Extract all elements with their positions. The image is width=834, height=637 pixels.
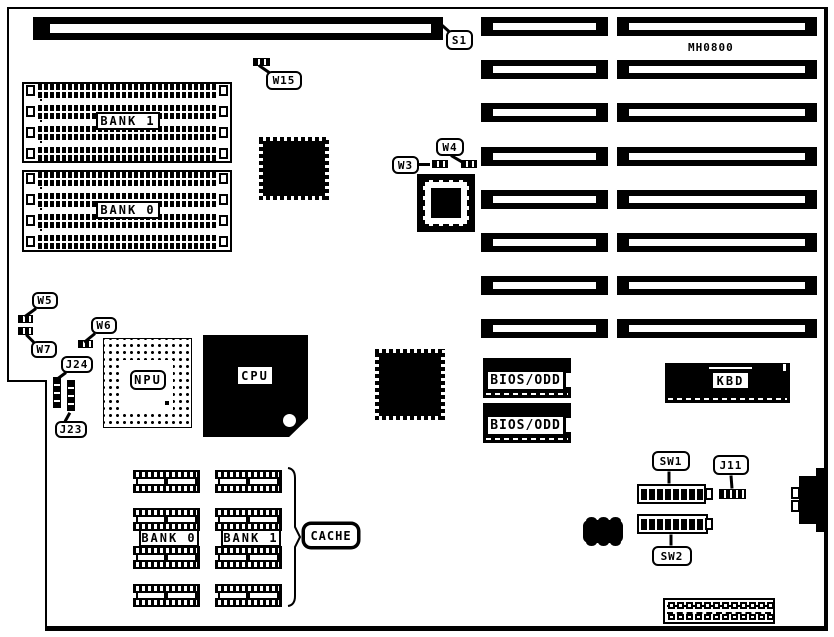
- expansion-slot-right-3-stripe: [629, 109, 805, 116]
- callout-leader: [668, 471, 671, 483]
- cache-socket-teeth-bottom: [218, 562, 279, 567]
- cache-bank-0-label: BANK 0: [139, 529, 199, 547]
- cache-socket-col0-row1: [133, 508, 200, 531]
- callout-w5: W5: [32, 292, 58, 309]
- power-socket: [668, 614, 675, 620]
- power-socket: [749, 614, 756, 620]
- power-socket: [740, 614, 747, 620]
- cache-socket-col1-row2: [215, 546, 282, 569]
- switch-position[interactable]: [641, 489, 647, 500]
- board-outline-bottom: [45, 626, 828, 631]
- expansion-slot-left-5-stripe: [493, 196, 596, 203]
- qfp-chip-middle-body: [379, 353, 441, 416]
- board-outline-left: [7, 7, 9, 382]
- expansion-slot-left-4: [481, 147, 608, 166]
- cache-socket-notch: [215, 593, 218, 598]
- simm-latch-left: [26, 106, 35, 117]
- cache-socket-teeth-bottom: [136, 486, 197, 491]
- simm-latch-left: [26, 85, 35, 96]
- cache-socket-slot-right: [168, 593, 195, 598]
- kbd-pin1-notch: [783, 364, 786, 371]
- simm-spacer: [40, 229, 42, 231]
- expansion-slot-left-7-stripe: [493, 282, 596, 289]
- switch-position[interactable]: [697, 519, 703, 530]
- cache-socket-teeth-top: [218, 472, 279, 477]
- expansion-slot-right-5: [617, 190, 817, 209]
- bios-odd-bottom-pin-row: [486, 438, 568, 440]
- switch-position[interactable]: [681, 519, 687, 530]
- cache-socket-slot-right: [168, 555, 195, 560]
- cache-socket-slot-left: [138, 517, 164, 522]
- switch-position[interactable]: [673, 489, 679, 500]
- board-outline-left-lower: [45, 380, 47, 630]
- cache-socket-slot-right: [250, 517, 277, 522]
- keyboard-connector-tab-1: [791, 487, 800, 499]
- callout-w3: W3: [392, 156, 419, 174]
- simm-row: [38, 84, 216, 98]
- switch-position[interactable]: [689, 519, 695, 530]
- power-socket: [704, 614, 711, 620]
- npu-label: NPU: [130, 370, 166, 390]
- cache-socket-slot-left: [138, 555, 164, 560]
- expansion-slot-right-8: [617, 319, 817, 338]
- callout-w7: W7: [31, 341, 57, 358]
- cache-socket-col1-row1: [215, 508, 282, 531]
- cache-socket-teeth-top: [136, 472, 197, 477]
- power-socket-row: [668, 614, 770, 620]
- callout-leader: [670, 534, 673, 545]
- expansion-slot-left-4-stripe: [493, 153, 596, 160]
- cache-socket-col1-row0: [215, 470, 282, 493]
- simm-spacer: [40, 141, 42, 143]
- expansion-slot-right-3: [617, 103, 817, 122]
- simm-latch-right: [219, 85, 228, 96]
- expansion-slot-right-4-stripe: [629, 153, 805, 160]
- simm-spacer: [40, 208, 42, 210]
- cache-socket-slot-left: [220, 555, 246, 560]
- callout-j11: J11: [713, 455, 749, 475]
- callout-sw2: SW2: [652, 546, 692, 566]
- qfp-chip-middle: [375, 349, 445, 420]
- switch-position[interactable]: [681, 489, 687, 500]
- simm-latch-left: [26, 148, 35, 159]
- cache-socket-teeth-top: [136, 510, 197, 515]
- cache-socket-notch: [133, 517, 136, 522]
- expansion-slot-right-6-stripe: [629, 239, 805, 246]
- power-socket: [731, 614, 738, 620]
- qfp-chip-top-body: [263, 141, 325, 196]
- simm-latch-left: [26, 127, 35, 138]
- expansion-slot-right-1-stripe: [629, 23, 805, 30]
- bios-odd-top-pin-row: [486, 393, 568, 395]
- callout-leader: [419, 163, 430, 166]
- board-model-label: MH0800: [688, 41, 734, 54]
- expansion-slot-right-2-stripe: [629, 66, 805, 73]
- power-socket: [758, 614, 765, 620]
- simm-latch-right: [219, 173, 228, 184]
- bios-odd-top-label-band: BIOS/ODD: [488, 372, 563, 389]
- cache-socket-slot-left: [220, 479, 246, 484]
- cache-socket-teeth-top: [218, 586, 279, 591]
- cache-bank-1-label: BANK 1: [221, 529, 281, 547]
- power-pin: [740, 602, 747, 609]
- cache-socket-col0-row2: [133, 546, 200, 569]
- cache-socket-notch: [133, 555, 136, 560]
- simm-spacer: [40, 99, 42, 101]
- dip-switch-sw1: [637, 484, 706, 504]
- simm-row: [38, 235, 216, 249]
- cache-socket-notch: [215, 479, 218, 484]
- kbd-chip: KBD: [665, 363, 790, 403]
- cache-socket-slot-left: [220, 593, 246, 598]
- cache-socket-teeth-bottom: [218, 600, 279, 605]
- memory-bank-1-label: BANK 1: [96, 112, 160, 130]
- callout-w15: W15: [266, 71, 302, 90]
- switch-position[interactable]: [657, 489, 663, 500]
- expansion-slot-right-1: [617, 17, 817, 36]
- expansion-slot-left-5: [481, 190, 608, 209]
- expansion-slot-right-7-stripe: [629, 282, 805, 289]
- cache-socket-teeth-top: [136, 548, 197, 553]
- motherboard-diagram: S1 W15 BANK 1 BANK 0 W3 W4 MH0800 W5 W7 …: [0, 0, 834, 637]
- cache-socket-slot-right: [250, 593, 277, 598]
- cache-brace: [286, 466, 302, 608]
- simm-latch-right: [219, 127, 228, 138]
- cache-socket-slot-right: [250, 555, 277, 560]
- power-pin: [722, 602, 729, 609]
- power-pin: [767, 602, 774, 609]
- bios-odd-bottom-label-band: BIOS/ODD: [488, 417, 563, 434]
- power-socket: [713, 614, 720, 620]
- expansion-slot-left-3-stripe: [493, 109, 596, 116]
- simm-latch-right: [219, 106, 228, 117]
- expansion-slot-right-6: [617, 233, 817, 252]
- simm-latch-left: [26, 173, 35, 184]
- expansion-slot-left-1-stripe: [493, 23, 596, 30]
- expansion-slot-left-8-stripe: [493, 325, 596, 332]
- cache-socket-slot-right: [250, 479, 277, 484]
- simm-latch-right: [219, 236, 228, 247]
- jumper-j11: [719, 489, 746, 499]
- cache-socket-notch: [133, 593, 136, 598]
- cache-socket-teeth-bottom: [218, 486, 279, 491]
- bios-odd-chip-top: BIOS/ODD: [483, 358, 571, 398]
- switch-position[interactable]: [657, 519, 663, 530]
- power-pin: [695, 602, 702, 609]
- callout-sw1: SW1: [652, 451, 690, 471]
- dip-switch-sw2: [637, 514, 708, 534]
- power-pin: [704, 602, 711, 609]
- board-outline-step: [7, 380, 47, 382]
- power-pin: [749, 602, 756, 609]
- cache-socket-teeth-top: [218, 548, 279, 553]
- simm-latch-left: [26, 236, 35, 247]
- cache-socket-teeth-bottom: [136, 562, 197, 567]
- power-socket: [677, 614, 684, 620]
- kbd-label-overline: [709, 367, 752, 369]
- jumper-j24: [53, 377, 61, 408]
- callout-j23: J23: [55, 421, 87, 438]
- simm-row: [38, 172, 216, 186]
- expansion-slot-left-6: [481, 233, 608, 252]
- cache-socket-teeth-bottom: [136, 600, 197, 605]
- switch-position-off[interactable]: [705, 488, 713, 500]
- callout-leader: [730, 475, 734, 488]
- cache-label: CACHE: [303, 523, 359, 548]
- power-socket: [767, 614, 774, 620]
- switch-position[interactable]: [665, 519, 671, 530]
- cache-socket-col1-row3: [215, 584, 282, 607]
- slot-s1: [33, 17, 443, 40]
- expansion-slot-left-1: [481, 17, 608, 36]
- cache-socket-slot-left: [220, 517, 246, 522]
- keyboard-connector-outer: [816, 468, 828, 532]
- switch-position-off[interactable]: [705, 518, 713, 530]
- battery: [583, 517, 623, 546]
- switch-position[interactable]: [649, 519, 655, 530]
- expansion-slot-right-4: [617, 147, 817, 166]
- simm-spacer: [40, 187, 42, 189]
- slot-s1-stripe: [50, 24, 431, 33]
- power-pin: [713, 602, 720, 609]
- power-socket: [686, 614, 693, 620]
- cache-socket-notch: [215, 517, 218, 522]
- callout-w4: W4: [436, 138, 464, 156]
- cache-socket-notch: [215, 555, 218, 560]
- power-socket: [695, 614, 702, 620]
- expansion-slot-right-2: [617, 60, 817, 79]
- switch-position[interactable]: [697, 489, 703, 500]
- power-socket: [722, 614, 729, 620]
- bios-odd-top-notch: [566, 373, 571, 387]
- kbd-pin-row: [668, 398, 787, 400]
- simm-latch-left: [26, 194, 35, 205]
- switch-position[interactable]: [649, 489, 655, 500]
- cache-socket-teeth-top: [136, 586, 197, 591]
- cache-socket-col0-row0: [133, 470, 200, 493]
- cache-socket-slot-left: [138, 593, 164, 598]
- bios-odd-bottom-notch: [566, 418, 571, 432]
- power-pin: [731, 602, 738, 609]
- expansion-slot-left-2-stripe: [493, 66, 596, 73]
- expansion-slot-right-8-stripe: [629, 325, 805, 332]
- plcc-socket: [417, 174, 475, 232]
- cache-socket-slot-right: [168, 479, 195, 484]
- npu-pin1-dot: [165, 401, 169, 405]
- plcc-socket-chip: [431, 188, 461, 218]
- kbd-label: KBD: [711, 371, 750, 390]
- expansion-slot-left-7: [481, 276, 608, 295]
- simm-latch-right: [219, 194, 228, 205]
- callout-s1: S1: [446, 30, 473, 50]
- expansion-slot-left-8: [481, 319, 608, 338]
- expansion-slot-right-5-stripe: [629, 196, 805, 203]
- switch-position[interactable]: [673, 519, 679, 530]
- switch-position[interactable]: [689, 489, 695, 500]
- callout-w6: W6: [91, 317, 117, 334]
- cpu-label: CPU: [237, 366, 273, 385]
- jumper-w3: [432, 160, 448, 168]
- cache-socket-slot-right: [168, 517, 195, 522]
- power-pin: [686, 602, 693, 609]
- cache-socket-slot-left: [138, 479, 164, 484]
- cpu-pin1-circle: [283, 414, 296, 427]
- board-outline-right: [824, 7, 828, 631]
- keyboard-connector-tab-2: [791, 500, 800, 512]
- cache-socket-teeth-top: [218, 510, 279, 515]
- power-connector: [663, 598, 775, 624]
- board-outline-top: [7, 7, 828, 9]
- power-pin: [677, 602, 684, 609]
- simm-spacer: [40, 120, 42, 122]
- switch-position[interactable]: [665, 489, 671, 500]
- power-pin-row: [668, 602, 770, 609]
- cache-socket-notch: [133, 479, 136, 484]
- power-pin: [668, 602, 675, 609]
- expansion-slot-left-3: [481, 103, 608, 122]
- expansion-slot-left-6-stripe: [493, 239, 596, 246]
- cpu-chip: [203, 335, 308, 437]
- simm-row: [38, 147, 216, 161]
- expansion-slot-left-2: [481, 60, 608, 79]
- qfp-chip-top: [259, 137, 329, 200]
- callout-j24: J24: [61, 356, 93, 373]
- jumper-j23: [67, 380, 75, 411]
- simm-latch-right: [219, 148, 228, 159]
- bios-odd-chip-bottom: BIOS/ODD: [483, 403, 571, 443]
- keyboard-connector-body: [799, 476, 817, 524]
- memory-bank-0-label: BANK 0: [96, 201, 160, 219]
- simm-latch-right: [219, 215, 228, 226]
- expansion-slot-right-7: [617, 276, 817, 295]
- switch-position[interactable]: [641, 519, 647, 530]
- power-pin: [758, 602, 765, 609]
- simm-latch-left: [26, 215, 35, 226]
- cache-socket-col0-row3: [133, 584, 200, 607]
